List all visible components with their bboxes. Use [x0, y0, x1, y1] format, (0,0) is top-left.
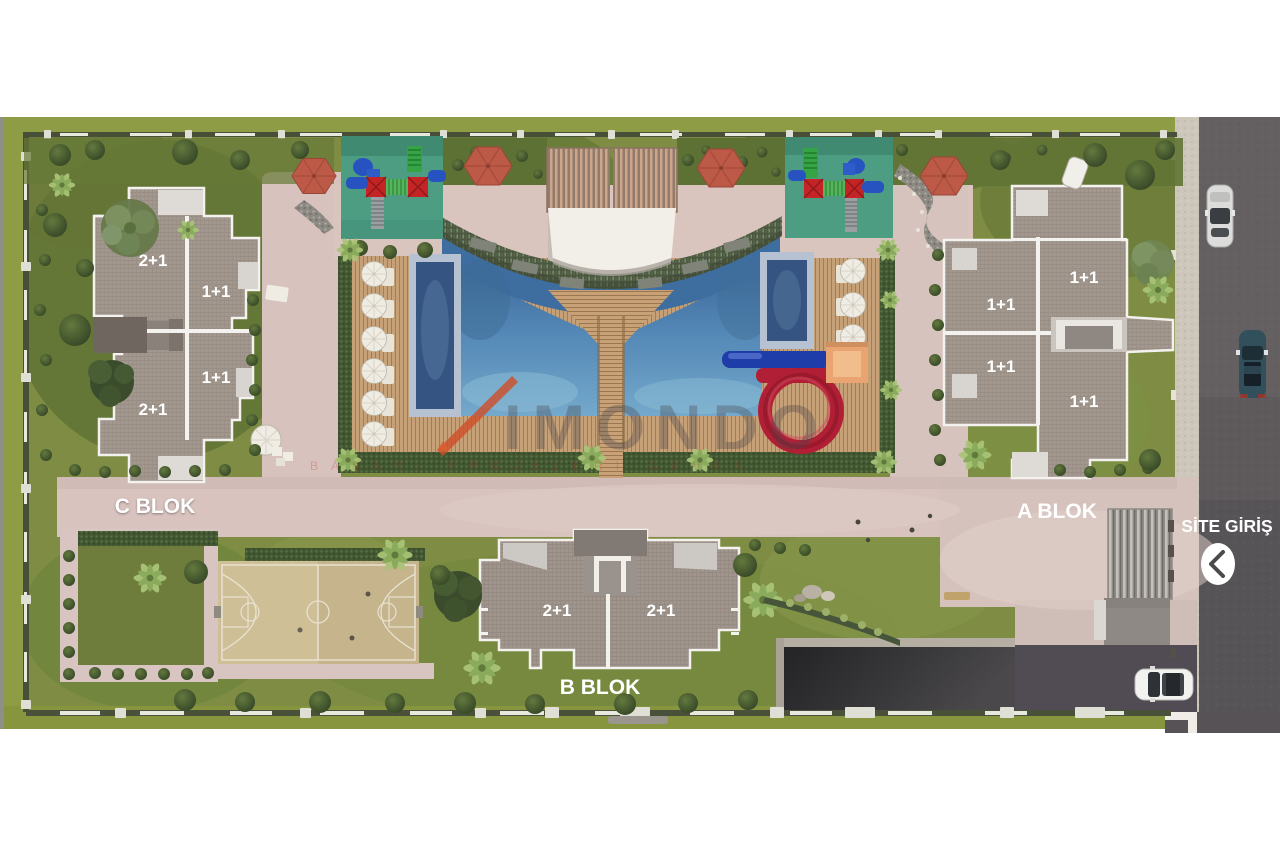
svg-text:2+1: 2+1 [543, 601, 572, 620]
svg-text:2+1: 2+1 [647, 601, 676, 620]
svg-text:1+1: 1+1 [202, 282, 231, 301]
svg-text:1+1: 1+1 [1070, 392, 1099, 411]
svg-text:1+1: 1+1 [202, 368, 231, 387]
svg-text:B BLOK: B BLOK [560, 676, 641, 699]
svg-text:1+1: 1+1 [987, 357, 1016, 376]
svg-text:A BLOK: A BLOK [1017, 500, 1097, 523]
svg-text:C BLOK: C BLOK [115, 495, 196, 518]
svg-text:IMONDO: IMONDO [504, 393, 829, 463]
svg-text:2+1: 2+1 [139, 400, 168, 419]
svg-text:SİTE GİRİŞ: SİTE GİRİŞ [1181, 516, 1272, 536]
svg-text:BAŞARI PROJELERİ GÜVEN: BAŞARI PROJELERİ GÜVEN [310, 459, 756, 473]
svg-text:1+1: 1+1 [987, 295, 1016, 314]
svg-text:1+1: 1+1 [1070, 268, 1099, 287]
